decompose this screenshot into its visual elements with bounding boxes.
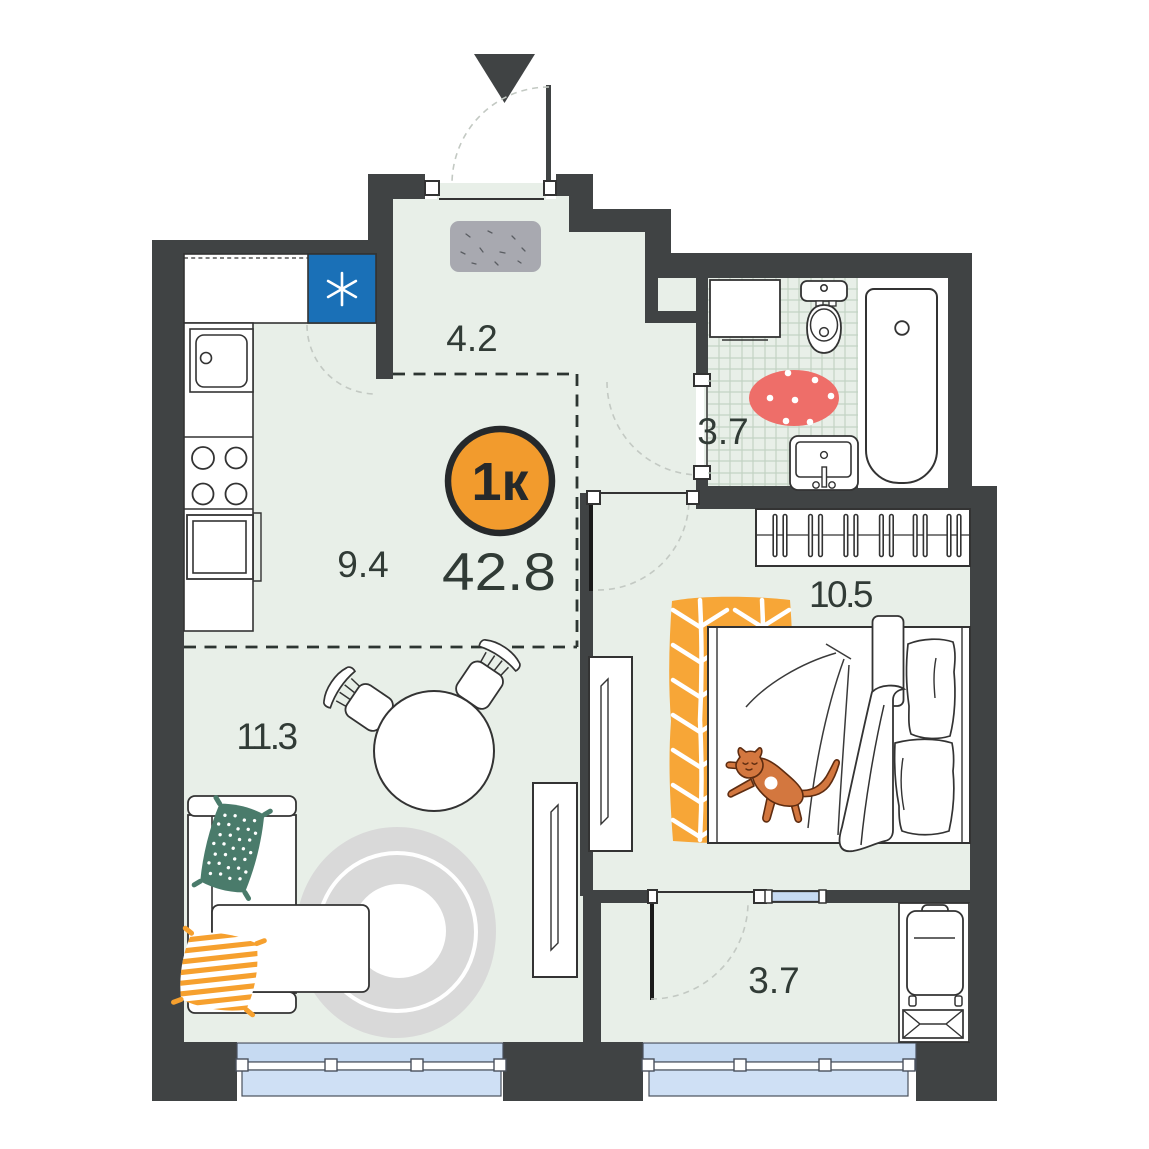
svg-text:10.5: 10.5 bbox=[809, 574, 873, 615]
svg-text:1к: 1к bbox=[471, 452, 529, 512]
svg-text:3.7: 3.7 bbox=[697, 411, 748, 452]
svg-text:9.4: 9.4 bbox=[337, 544, 388, 585]
svg-text:11.3: 11.3 bbox=[236, 716, 296, 757]
svg-text:3.7: 3.7 bbox=[748, 960, 799, 1001]
svg-text:4.2: 4.2 bbox=[446, 318, 497, 359]
svg-text:42.8: 42.8 bbox=[442, 543, 556, 602]
